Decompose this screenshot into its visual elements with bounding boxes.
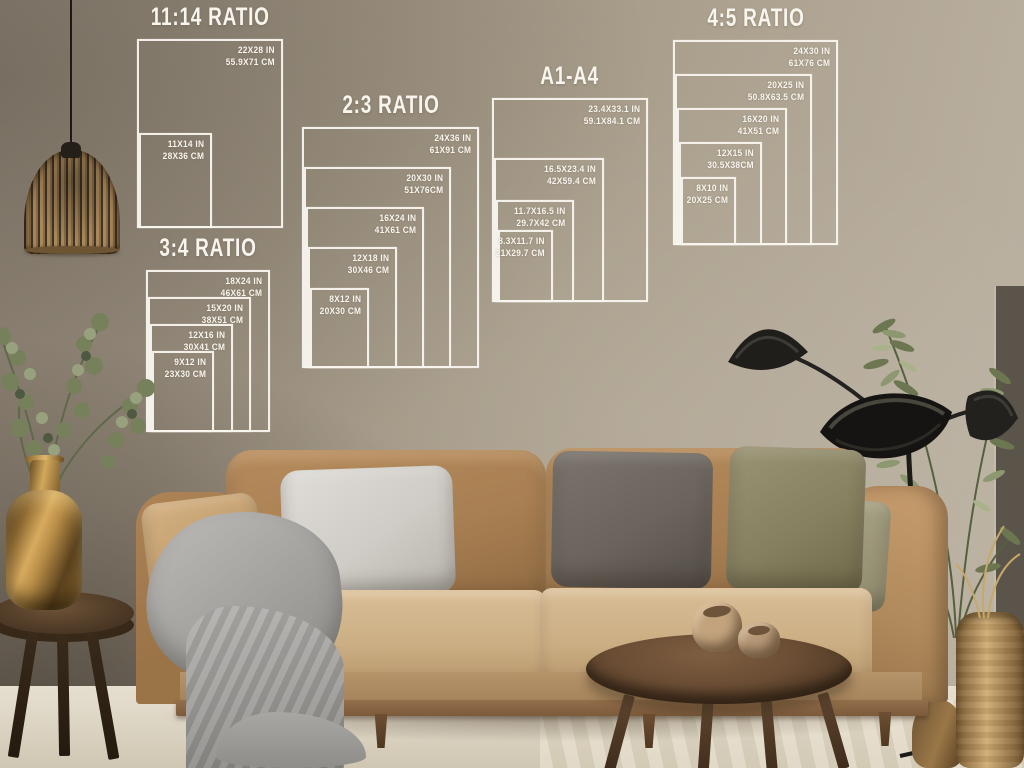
- size-label: 16.5X23.4 IN42X59.4 CM: [544, 164, 596, 187]
- size-label: 24X36 IN61X91 CM: [429, 133, 471, 156]
- pendant-cord: [70, 0, 72, 152]
- size-label: 20X25 IN50.8X63.5 CM: [747, 80, 804, 103]
- size-rect: 8.3X11.7 IN21X29.7 CM: [498, 230, 553, 302]
- size-label: 20X30 IN51X76CM: [404, 173, 443, 196]
- brass-vase: [6, 490, 82, 610]
- side-table-leg: [57, 630, 70, 756]
- eucalyptus-plant: [0, 270, 190, 510]
- size-rect: 8X10 IN20X25 CM: [681, 177, 736, 245]
- size-label: 16X24 IN41X61 CM: [374, 213, 416, 236]
- size-label: 18X24 IN46X61 CM: [220, 276, 262, 299]
- chart-title: A1-A4: [462, 62, 678, 90]
- size-label: 12X18 IN30X46 CM: [347, 253, 389, 276]
- size-chart-a1-a4: A1-A423.4X33.1 IN59.1X84.1 CM16.5X23.4 I…: [492, 98, 648, 302]
- size-label: 23.4X33.1 IN59.1X84.1 CM: [583, 104, 640, 127]
- chart-title: 3:4 RATIO: [116, 234, 300, 262]
- size-label: 11X14 IN28X36 CM: [162, 139, 204, 162]
- size-label: 8.3X11.7 IN21X29.7 CM: [496, 236, 545, 259]
- pendant-cap: [61, 142, 81, 158]
- chart-title: 11:14 RATIO: [107, 3, 313, 31]
- size-rect: 11X14 IN28X36 CM: [139, 133, 212, 228]
- size-label: 12X15 IN30.5X38CM: [707, 148, 754, 171]
- chart-title: 2:3 RATIO: [272, 91, 509, 119]
- size-label: 16X20 IN41X51 CM: [737, 114, 779, 137]
- size-label: 11.7X16.5 IN29.7X42 CM: [514, 206, 566, 229]
- size-label: 8X10 IN20X25 CM: [686, 183, 728, 206]
- chart-title: 4:5 RATIO: [643, 4, 868, 32]
- size-label: 24X30 IN61X76 CM: [788, 46, 830, 69]
- size-label: 22X28 IN55.9X71 CM: [226, 45, 275, 68]
- dark-gray-pillow: [551, 451, 713, 590]
- olive-pillow: [726, 446, 867, 595]
- woven-vase: [956, 612, 1024, 768]
- size-label: 8X12 IN20X30 CM: [319, 294, 361, 317]
- size-rect: 8X12 IN20X30 CM: [310, 288, 369, 368]
- dried-stems: [940, 520, 1024, 620]
- size-chart-ratio-4-5: 4:5 RATIO24X30 IN61X76 CM20X25 IN50.8X63…: [673, 40, 838, 245]
- pendant-lamp-rim: [24, 246, 120, 254]
- size-chart-ratio-2-3: 2:3 RATIO24X36 IN61X91 CM20X30 IN51X76CM…: [302, 127, 479, 368]
- size-chart-ratio-11-14: 11:14 RATIO22X28 IN55.9X71 CM11X14 IN28X…: [137, 39, 283, 228]
- living-room-size-guide-photo: 11:14 RATIO22X28 IN55.9X71 CM11X14 IN28X…: [0, 0, 1024, 768]
- size-label: 15X20 IN38X51 CM: [201, 303, 243, 326]
